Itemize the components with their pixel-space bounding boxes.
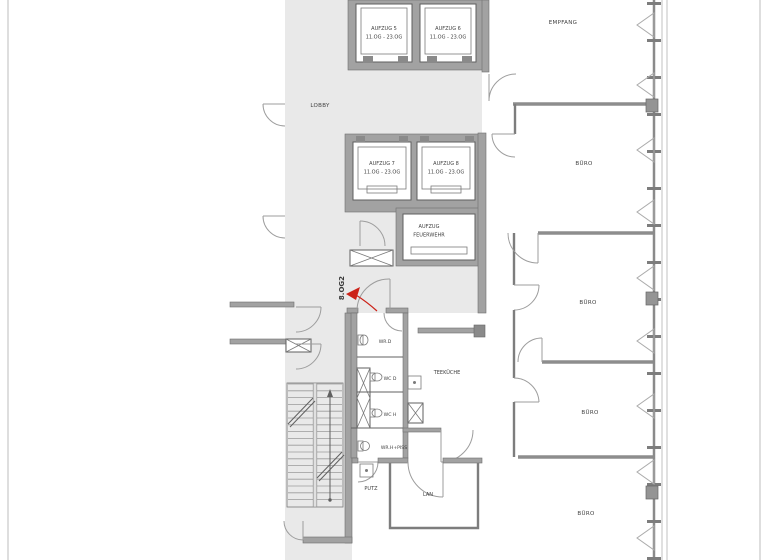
teekueche-room [403, 325, 485, 462]
toilet-symbol-h [372, 409, 382, 417]
fire-elevator-label-2: FEUERWEHR [413, 233, 445, 239]
wr-d-label: WR.D [379, 339, 392, 345]
buero-label-4: BÜRO [577, 510, 595, 517]
aufzug8-name: AUFZUG 8 [433, 161, 459, 167]
aufzug7-name: AUFZUG 7 [369, 161, 395, 167]
teekueche-label: TEEKÜCHE [433, 369, 461, 376]
toilet-symbol-d [372, 373, 382, 381]
facade-window-vents [637, 13, 654, 550]
putz-lan-rooms [352, 458, 482, 528]
empfang-label: EMPFANG [549, 20, 577, 26]
basin-symbol [361, 442, 370, 451]
fire-elevator-label-1: AUFZUG [419, 224, 440, 230]
sink-symbol [360, 335, 368, 345]
wc-d-label: WC D [384, 376, 397, 382]
shaft-x-box [350, 250, 393, 266]
wc-h-label: WC H [384, 412, 397, 418]
aufzug7-range: 11.OG - 23.OG [364, 170, 401, 176]
floor-marker-label: 8.OG2 [338, 276, 346, 300]
wr-h-piss-label: WR.H+PISS [381, 445, 407, 451]
drawing-sheet: LOBBY EMPFANG BÜRO BÜRO BÜRO BÜRO TEEKÜC… [0, 0, 768, 560]
buero-label-2: BÜRO [579, 299, 597, 306]
lan-label: LAN [423, 492, 433, 498]
facade-columns [646, 99, 658, 499]
putz-label: PUTZ [364, 486, 378, 492]
aufzug6-range: 11.OG - 23.OG [430, 35, 467, 41]
aufzug5-name: AUFZUG 5 [371, 26, 397, 32]
lobby-west-doors [263, 104, 285, 238]
aufzug6-name: AUFZUG 6 [435, 26, 461, 32]
floorplan-svg: LOBBY EMPFANG BÜRO BÜRO BÜRO BÜRO TEEKÜC… [0, 0, 768, 560]
buero-label-1: BÜRO [575, 160, 593, 167]
lobby-label: LOBBY [310, 103, 330, 109]
elevator-6-cabin [420, 4, 476, 62]
wall-post [474, 325, 485, 337]
aufzug5-range: 11.OG - 23.OG [366, 35, 403, 41]
facade [637, 0, 667, 560]
elevator-5-cabin [356, 4, 412, 62]
office-partitions [478, 0, 654, 457]
buero-label-3: BÜRO [581, 409, 599, 416]
aufzug8-range: 11.OG - 23.OG [428, 170, 465, 176]
